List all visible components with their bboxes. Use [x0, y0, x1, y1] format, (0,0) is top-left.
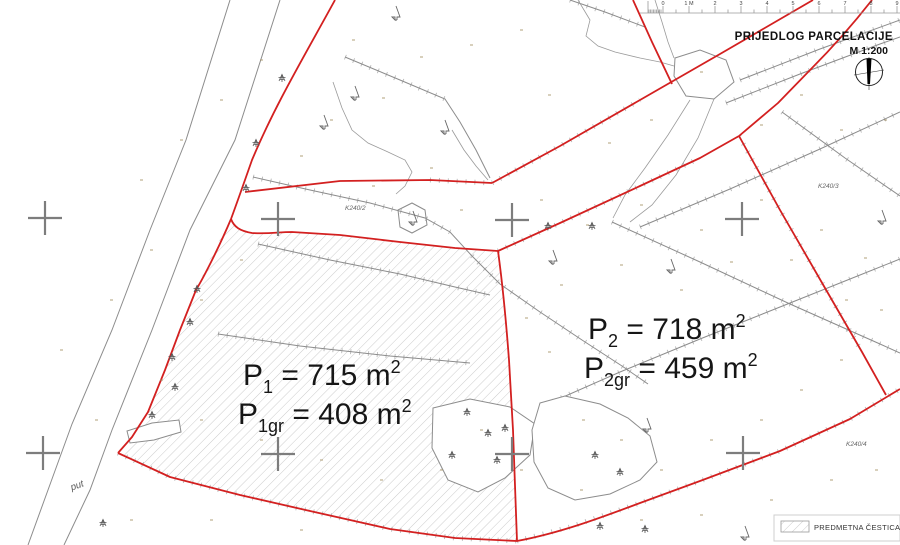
p1gr-sup: 2 — [402, 396, 412, 416]
p2-base: P — [588, 313, 608, 346]
scale-ruler: 0 1 M 2 3 4 5 6 7 8 9 — [640, 1, 900, 13]
p1gr-sub: 1gr — [258, 416, 284, 436]
road-label: put — [68, 478, 85, 493]
p2-sup: 2 — [736, 311, 746, 331]
parcel-2-building-area-label: P2gr = 459 m2 — [584, 350, 758, 390]
ruler-label: 2 — [713, 1, 716, 7]
p2gr-mid: = 459 m — [630, 352, 748, 385]
ruler-label: 7 — [843, 1, 846, 7]
p2gr-base: P — [584, 352, 604, 385]
ruler-labels: 0 1 M 2 3 4 5 6 7 8 9 — [661, 1, 898, 7]
cadastral-ref-2: K240/3 — [818, 183, 839, 190]
terrain-island-small — [398, 203, 427, 233]
p1gr-base: P — [238, 398, 258, 431]
parcel-2-area-label: P2 = 718 m2 — [588, 311, 746, 351]
p1gr-mid: = 408 m — [284, 398, 402, 431]
ruler-label: 5 — [791, 1, 794, 7]
ruler-label: 4 — [765, 1, 768, 7]
parcelization-plan-canvas: 0 1 M 2 3 4 5 6 7 8 9 PRIJEDLOG PARCELAC… — [0, 0, 900, 545]
p1-base: P — [243, 359, 263, 392]
legend: PREDMETNA ČESTICA — [774, 515, 900, 541]
cadastral-ref-1: K240/2 — [345, 205, 366, 212]
terrain-island-large — [432, 399, 535, 492]
ruler-label: 3 — [739, 1, 742, 7]
legend-hatch-swatch — [781, 521, 809, 532]
p1-mid: = 715 m — [273, 359, 391, 392]
drawing-title: PRIJEDLOG PARCELACIJE — [735, 31, 893, 43]
ruler-label: 8 — [869, 1, 872, 7]
p1-sup: 2 — [391, 357, 401, 377]
survey-drawing: 0 1 M 2 3 4 5 6 7 8 9 PRIJEDLOG PARCELAC… — [0, 0, 900, 545]
legend-label: PREDMETNA ČESTICA — [814, 523, 900, 532]
p1-sub: 1 — [263, 377, 273, 397]
p2gr-sup: 2 — [748, 350, 758, 370]
ruler-label: 6 — [817, 1, 820, 7]
ruler-label: 0 — [661, 1, 664, 7]
p2-sub: 2 — [608, 331, 618, 351]
cadastral-ref-3: K240/4 — [846, 441, 867, 448]
ruler-label: 1 M — [684, 1, 694, 7]
ruler-label: 9 — [895, 1, 898, 7]
p2-mid: = 718 m — [618, 313, 736, 346]
north-arrow-icon — [854, 57, 884, 90]
p2gr-sub: 2gr — [604, 370, 630, 390]
drawing-scale: M 1:200 — [849, 45, 888, 57]
